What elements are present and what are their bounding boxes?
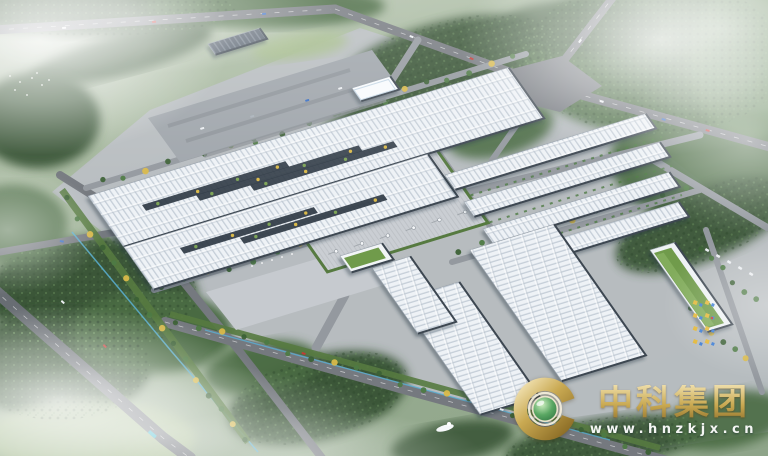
- company-website: www.hnzkjx.cn: [590, 422, 758, 437]
- logo-green-sphere: [533, 397, 558, 422]
- watermark-text: 中科集团 www.hnzkjx.cn: [590, 385, 758, 437]
- company-logo-c-icon: [508, 374, 582, 448]
- aerial-rendering-industrial-park: 中科集团 www.hnzkjx.cn: [0, 0, 768, 456]
- watermark: 中科集团 www.hnzkjx.cn: [508, 374, 758, 448]
- company-name: 中科集团: [598, 385, 750, 421]
